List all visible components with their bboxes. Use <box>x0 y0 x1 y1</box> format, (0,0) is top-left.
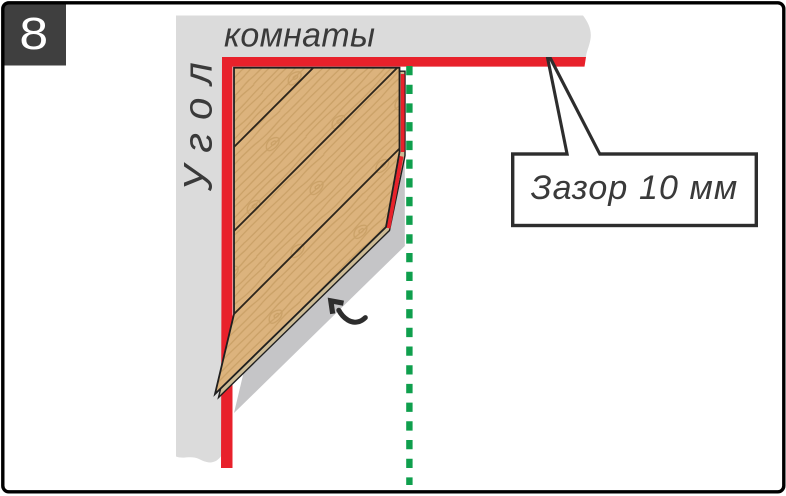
svg-text:Зазор 10 мм: Зазор 10 мм <box>531 169 739 207</box>
svg-text:8: 8 <box>19 9 48 59</box>
svg-text:Угол: Угол <box>177 49 221 192</box>
svg-text:комнаты: комнаты <box>224 17 375 55</box>
